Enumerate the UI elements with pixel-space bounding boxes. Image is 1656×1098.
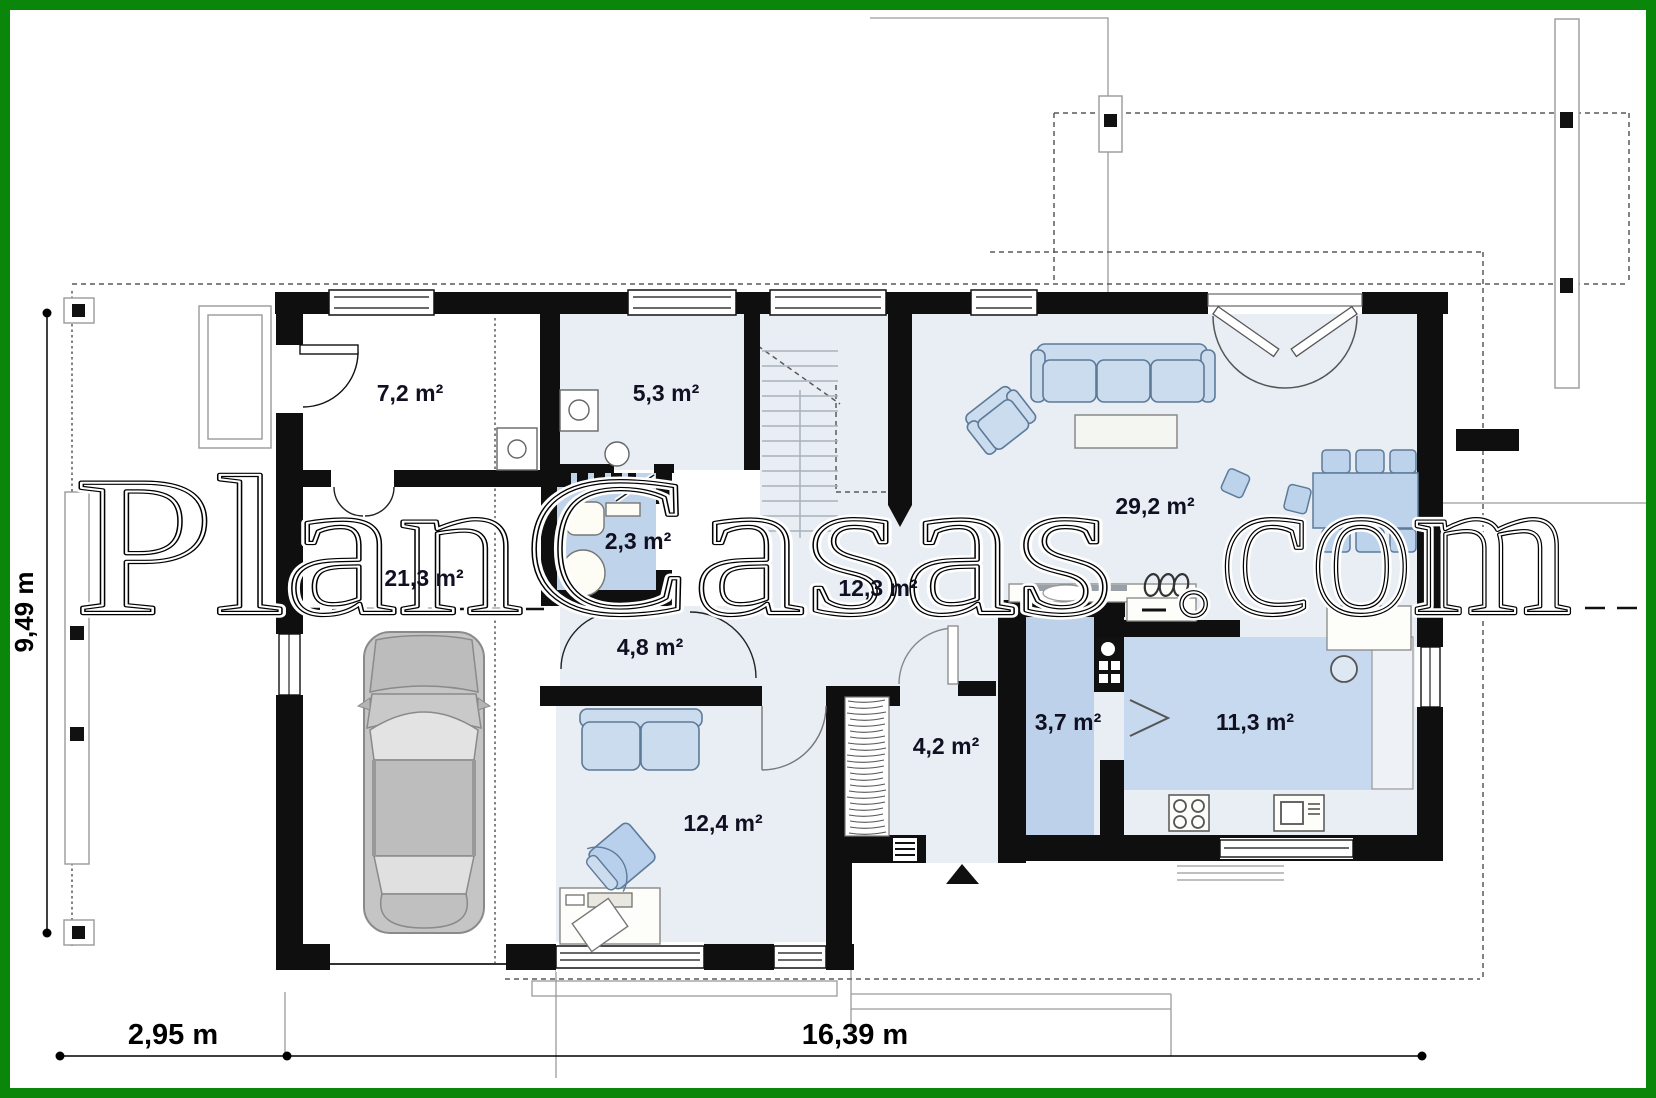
svg-text:.com: .com [1168, 437, 1572, 657]
svg-text:21,3 m²: 21,3 m² [384, 565, 464, 591]
svg-text:11,3 m²: 11,3 m² [1216, 709, 1294, 735]
svg-text:12,3 m²: 12,3 m² [838, 575, 918, 601]
svg-text:4,8 m²: 4,8 m² [617, 634, 684, 660]
svg-text:5,3 m²: 5,3 m² [633, 380, 700, 406]
svg-text:PlanCasas: PlanCasas [74, 437, 1114, 657]
svg-text:16,39 m: 16,39 m [802, 1019, 908, 1051]
svg-text:4,2 m²: 4,2 m² [913, 733, 980, 759]
svg-text:12,4 m²: 12,4 m² [683, 810, 763, 836]
svg-text:29,2 m²: 29,2 m² [1115, 493, 1195, 519]
svg-text:3,7 m²: 3,7 m² [1035, 709, 1102, 735]
svg-text:2,3 m²: 2,3 m² [605, 528, 672, 554]
svg-text:7,2 m²: 7,2 m² [377, 380, 444, 406]
svg-text:9,49 m: 9,49 m [9, 572, 39, 653]
svg-text:2,95 m: 2,95 m [128, 1019, 218, 1051]
